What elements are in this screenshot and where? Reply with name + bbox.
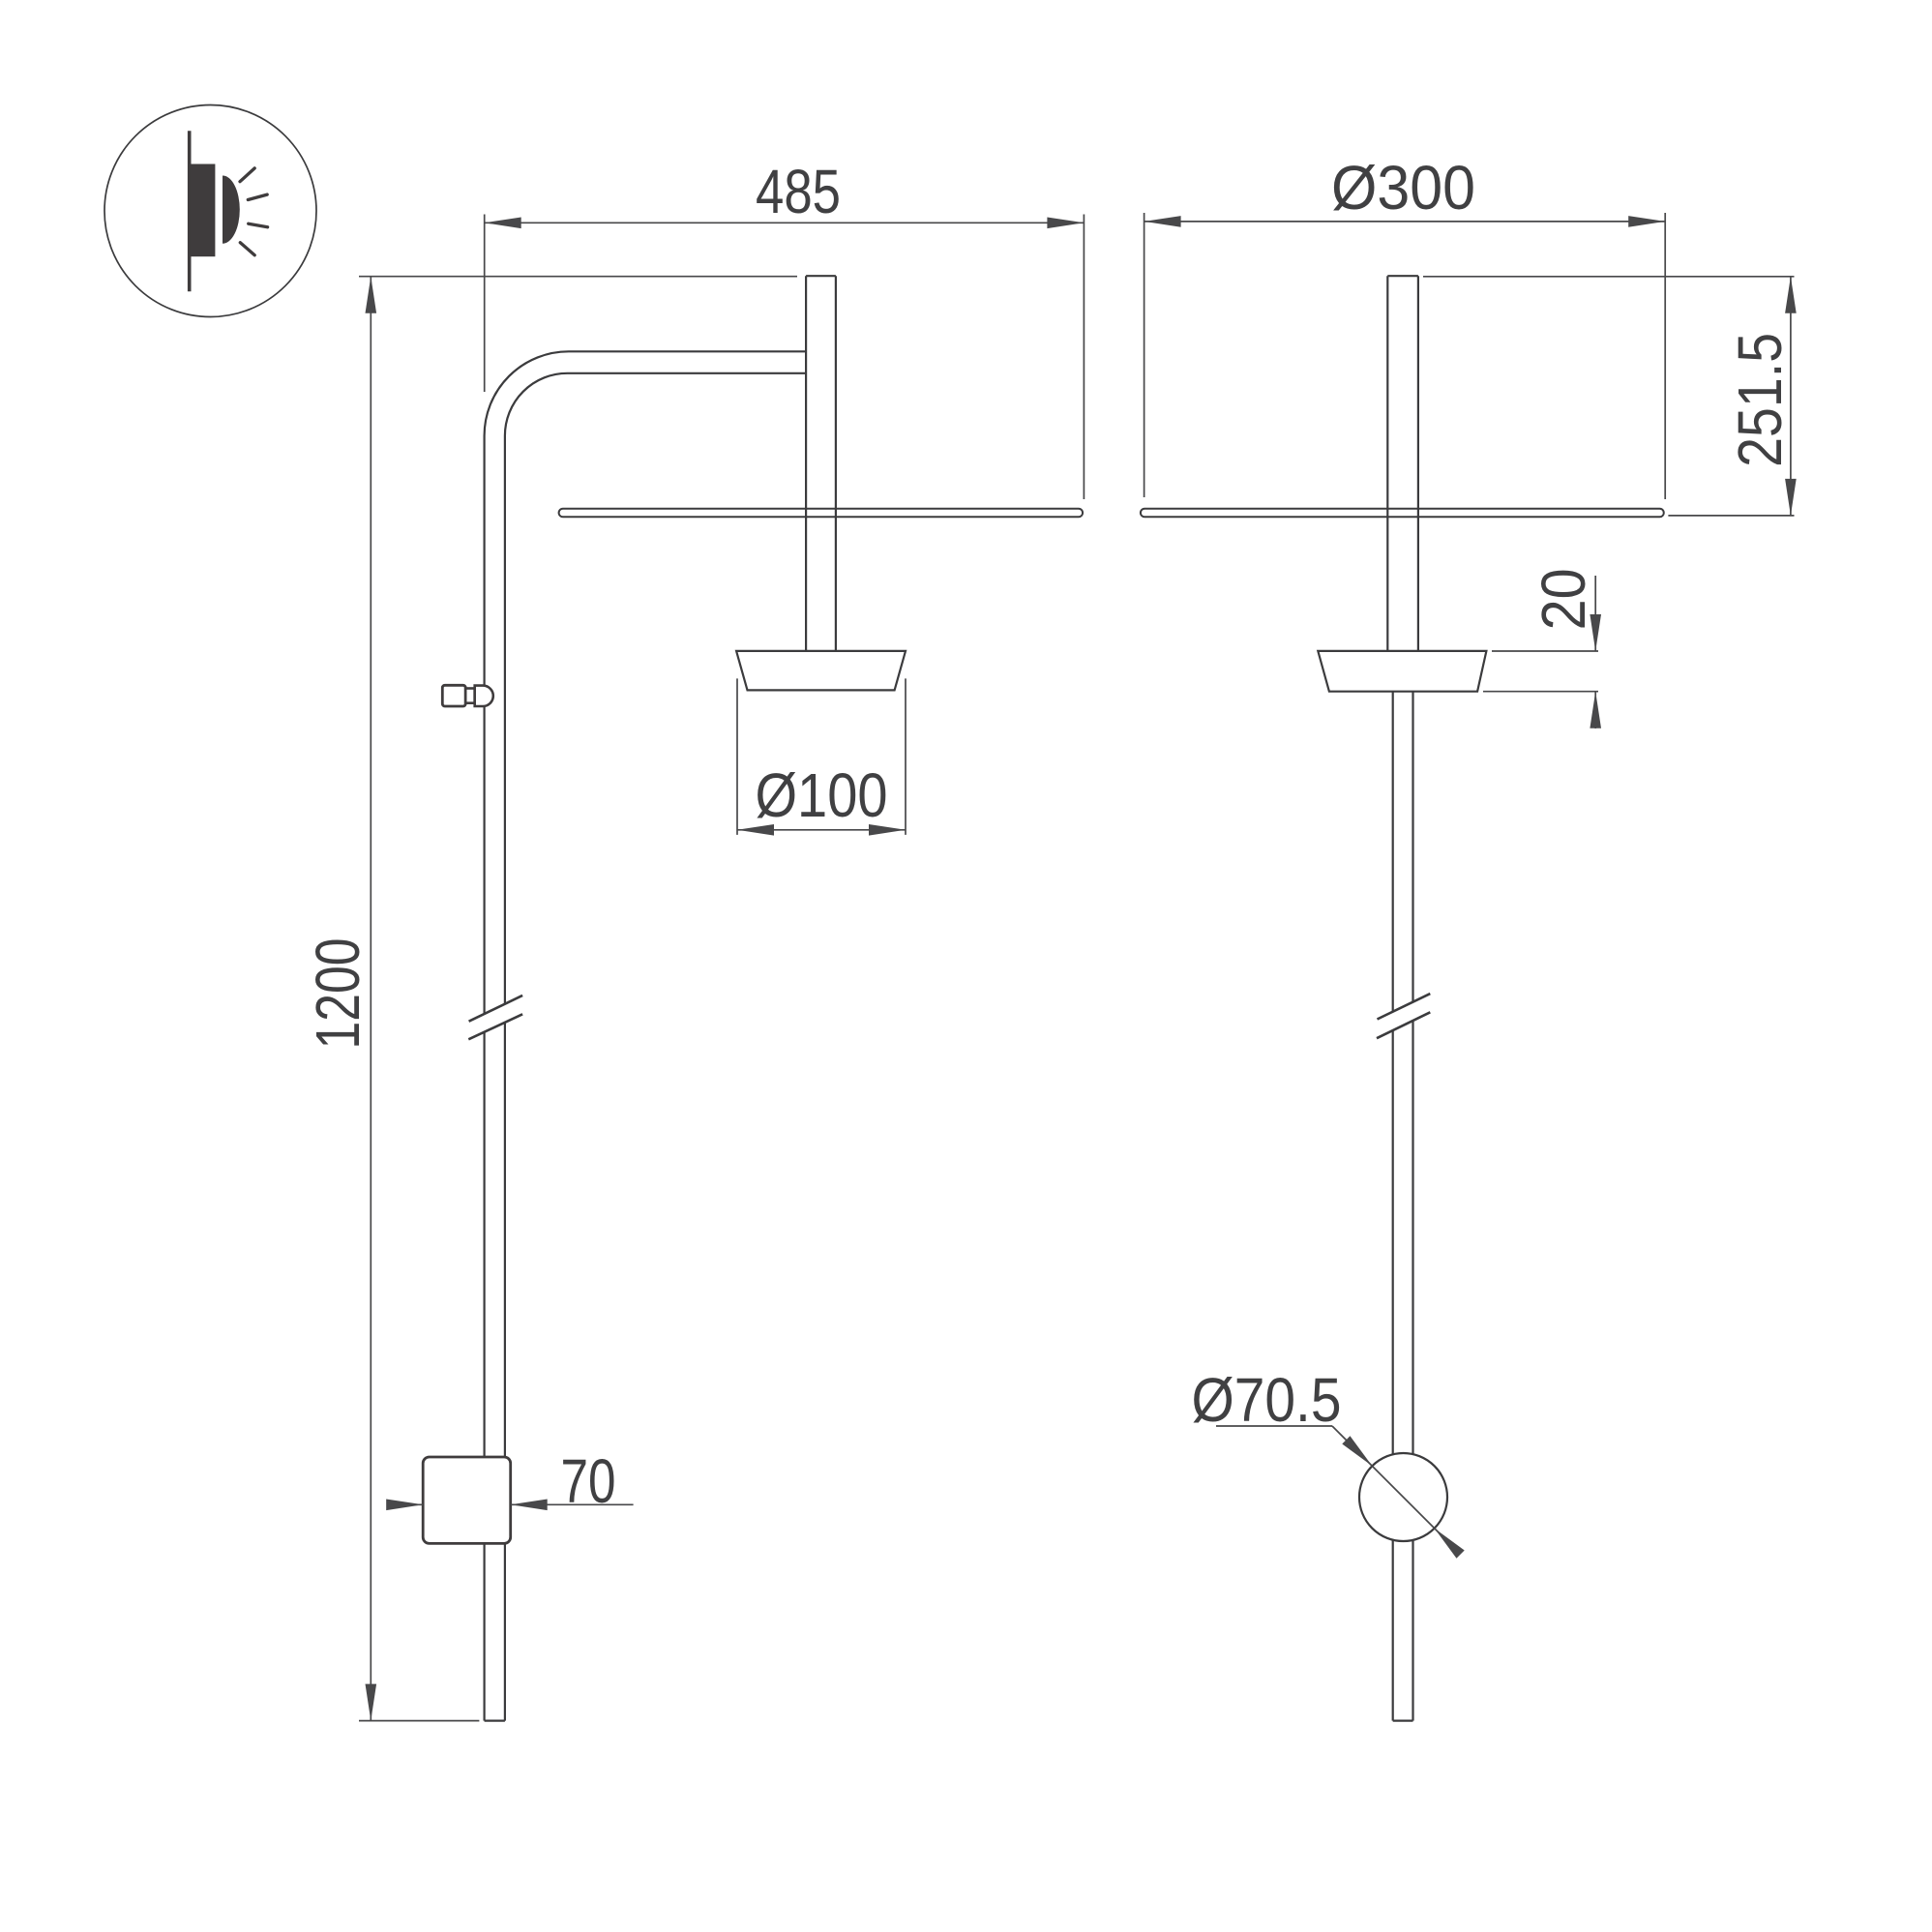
- svg-text:485: 485: [756, 157, 841, 226]
- svg-text:Ø70.5: Ø70.5: [1192, 1365, 1342, 1435]
- svg-text:Ø100: Ø100: [756, 760, 888, 830]
- svg-text:1200: 1200: [303, 938, 372, 1050]
- svg-text:251.5: 251.5: [1725, 333, 1795, 467]
- svg-text:20: 20: [1529, 568, 1598, 630]
- svg-text:70: 70: [561, 1446, 616, 1516]
- svg-text:Ø300: Ø300: [1331, 153, 1475, 223]
